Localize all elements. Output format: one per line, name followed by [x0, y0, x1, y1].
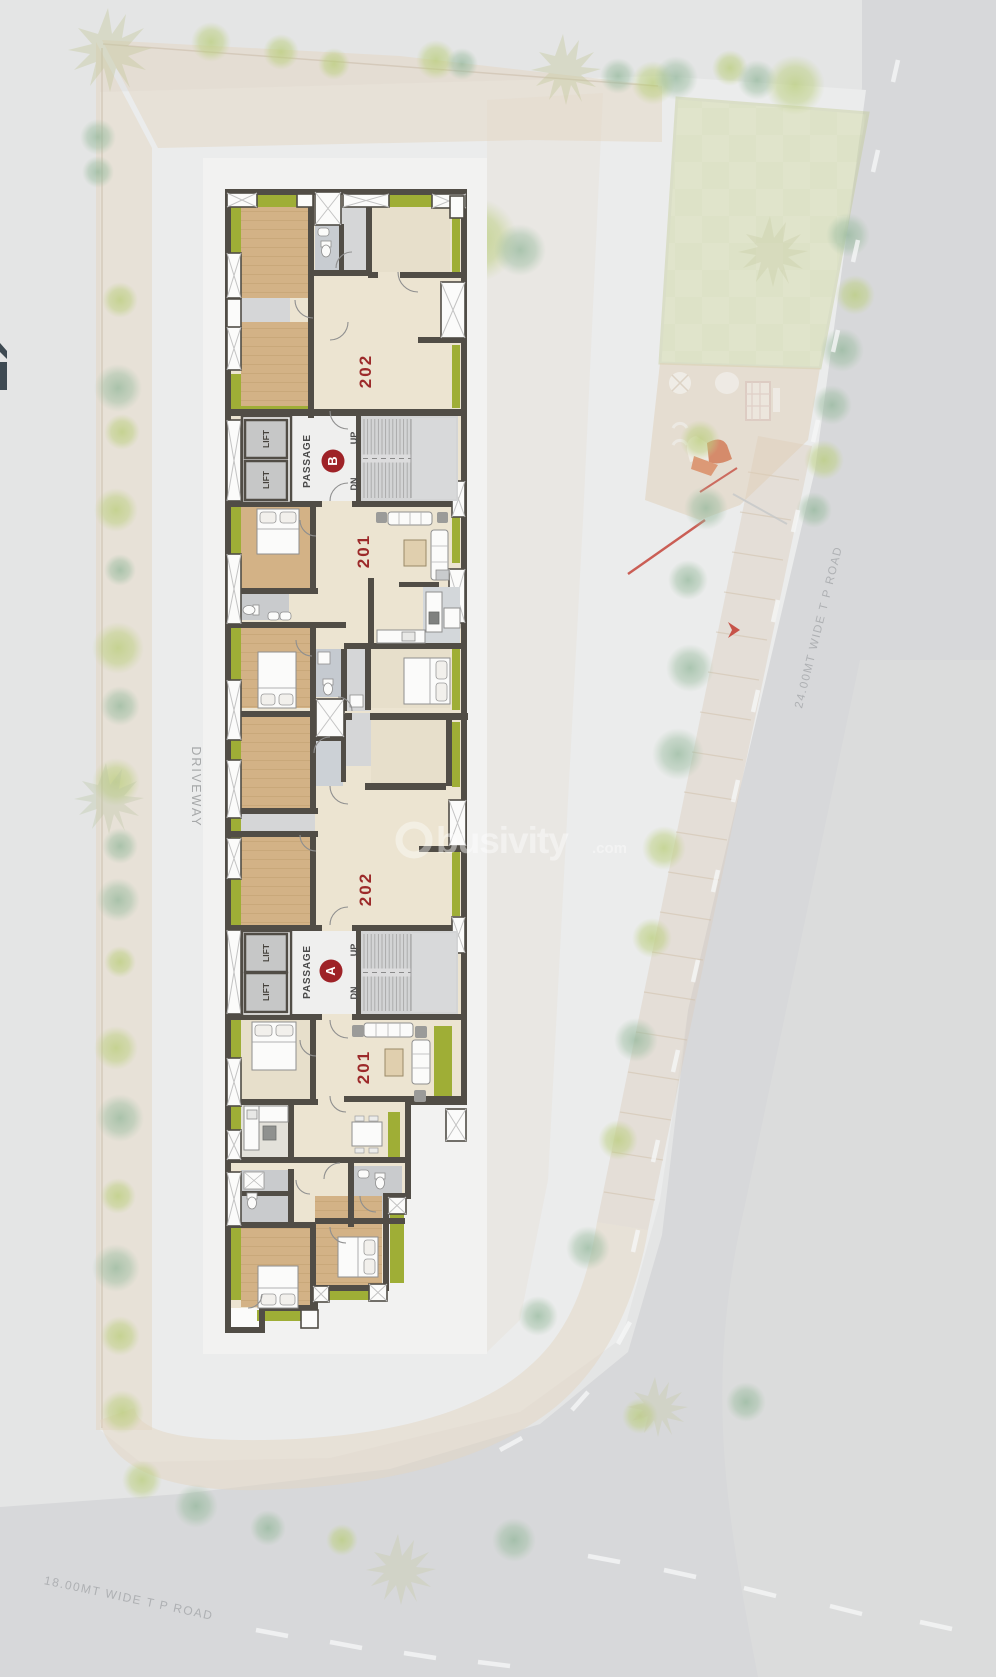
- svg-text:202: 202: [356, 354, 375, 388]
- svg-text:LIFT: LIFT: [261, 470, 271, 489]
- svg-text:.com: .com: [592, 840, 627, 857]
- svg-text:DRIVEWAY: DRIVEWAY: [189, 746, 203, 827]
- svg-text:PASSAGE: PASSAGE: [302, 434, 313, 488]
- svg-text:A: A: [323, 966, 338, 976]
- svg-text:UP: UP: [349, 944, 359, 957]
- svg-text:LIFT: LIFT: [261, 429, 271, 448]
- svg-text:PASSAGE: PASSAGE: [302, 945, 313, 999]
- svg-text:202: 202: [356, 872, 375, 906]
- svg-text:LIFT: LIFT: [261, 982, 271, 1001]
- svg-text:LIFT: LIFT: [261, 943, 271, 962]
- svg-text:201: 201: [354, 1050, 373, 1084]
- svg-text:busivity: busivity: [436, 820, 569, 861]
- svg-text:B: B: [325, 456, 340, 465]
- svg-text:DN: DN: [349, 987, 359, 1000]
- svg-text:UP: UP: [349, 432, 359, 445]
- svg-text:DN: DN: [349, 478, 359, 491]
- svg-text:201: 201: [354, 534, 373, 568]
